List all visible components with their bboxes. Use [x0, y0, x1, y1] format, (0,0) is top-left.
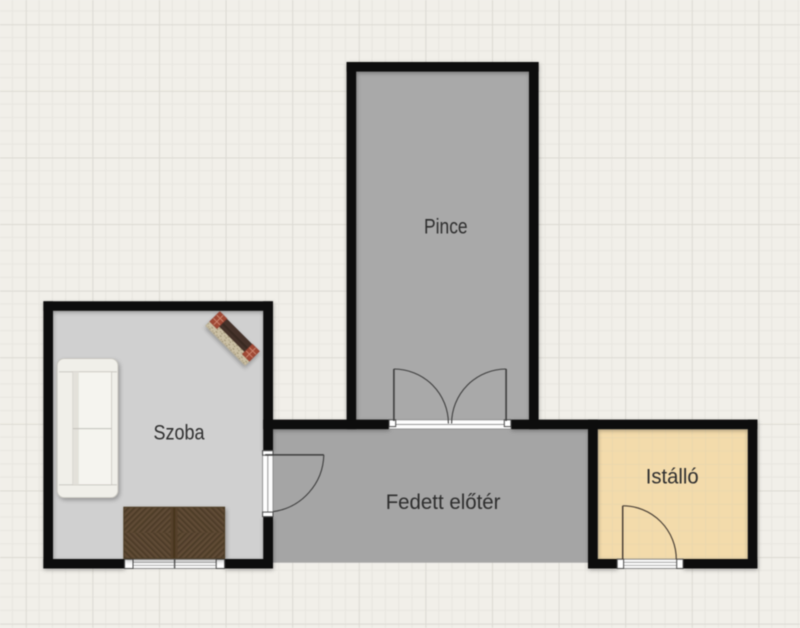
svg-text:Pince: Pince: [424, 216, 468, 239]
svg-text:Fedett előtér: Fedett előtér: [386, 491, 501, 514]
svg-text:Istálló: Istálló: [646, 466, 699, 489]
svg-text:Szoba: Szoba: [154, 421, 205, 444]
